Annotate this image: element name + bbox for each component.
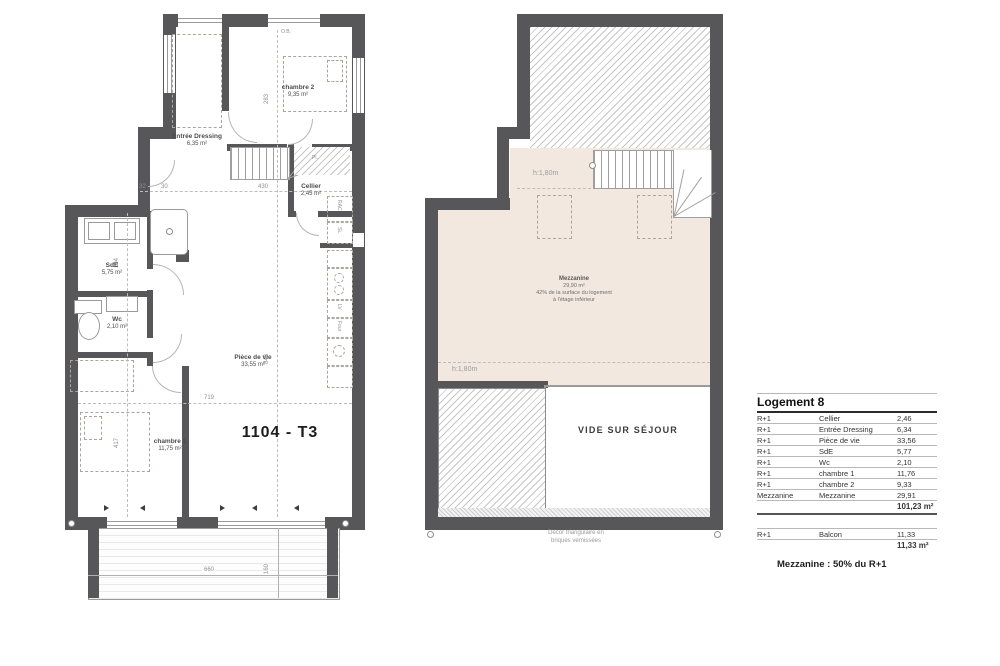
window-tag: O.B. [281,29,291,35]
cell-level: R+1 [757,414,819,423]
cell-room: Pièce de vie [819,436,897,445]
roof-window [637,195,672,239]
window [353,58,364,113]
survey-point-icon [342,520,349,527]
area-summary-table: Logement 8 R+1 Cellier 2,46 R+1 Entrée D… [757,393,937,552]
cell-level: R+1 [757,425,819,434]
cell-room: Mezzanine [819,491,897,500]
height-limit-line [438,362,710,363]
slide-arrow-icon [220,505,225,511]
dimension-label: 30 [161,184,168,190]
room-name: Wc [89,316,145,324]
table-row: R+1 chambre 2 9,33 [757,479,937,490]
survey-point-icon [68,520,75,527]
dimension-line [278,528,279,598]
hob-burner-icon [334,273,344,283]
cell-total: 11,33 m² [897,541,937,551]
room-area: 5,75 m² [84,270,140,277]
room-label-cellier: Cellier 2,45 m² [283,183,339,198]
sink-basin [114,222,136,240]
slide-arrow-icon [104,505,109,511]
wall-segment [425,198,438,530]
kitchen-tag-sl: SL [336,227,342,233]
cell-area: 9,33 [897,480,937,489]
unit-title: 1104 - T3 [210,424,350,442]
closet-tag: Pl. [312,155,318,161]
cell-room: SdE [819,447,897,456]
hob-burner-icon [334,285,344,295]
room-area: 9,35 m² [268,92,328,99]
cell-room [819,541,897,551]
cell-level [757,541,819,551]
room-name: Entrée Dressing [167,133,227,141]
interior-wall [438,381,548,388]
door-arc [228,112,257,143]
brick-decor-band [438,508,710,517]
table-row: R+1 Pièce de vie 33,56 [757,435,937,446]
stairs [593,150,675,189]
room-name: chambre 2 [268,84,328,92]
dimension-label: 430 [258,184,268,190]
cell-level: R+1 [757,530,819,539]
table-total-balcon: 11,33 m² [757,540,937,552]
table-total-main: 101,23 m² [757,501,937,515]
pillow [327,60,343,82]
room-area: 11,75 m² [140,446,200,453]
room-area: 2,45 m² [283,191,339,198]
balcony-deck [88,528,340,600]
cell-level: R+1 [757,469,819,478]
kitchen-tag-lv: LV [336,304,342,310]
void-label: VIDE SUR SÉJOUR [548,425,708,435]
cell-area: 11,76 [897,469,937,478]
room-label-sde: SdE 5,75 m² [84,262,140,277]
interior-wall [288,211,296,217]
interior-wall [222,27,229,111]
floorplan-canvas: O.B. Pl. [0,0,1000,666]
door-arc [288,119,313,145]
kitchen-unit [327,250,353,268]
cell-room: Balcon [819,530,897,539]
sink-bowl-icon [333,345,345,357]
cell-room [819,502,897,512]
cell-total: 101,23 m² [897,502,937,512]
wall-opening [353,233,364,247]
closet-hatch [294,147,350,175]
table-row: R+1 Entrée Dressing 6,34 [757,424,937,435]
sink-basin [88,222,110,240]
mezzanine-label: Mezzanine 29,90 m² 42% de la surface du … [484,275,664,304]
height-label-bottom: h:1,80m [452,366,477,373]
slide-arrow-icon [252,505,257,511]
table-row: R+1 Cellier 2,46 [757,413,937,424]
table-row: Mezzanine Mezzanine 29,91 [757,490,937,501]
cell-level [757,502,819,512]
room-name: chambre 1 [140,438,200,446]
pillow [84,416,102,440]
door-arc [296,213,319,236]
dressing-unit [172,34,222,128]
slide-arrow-icon [140,505,145,511]
axis-line [277,30,278,517]
cell-area: 5,77 [897,447,937,456]
kitchen-tag-rac: RAC [336,200,342,211]
room-area: 33,55 m² [223,362,283,369]
dimension-label: 719 [204,395,214,401]
balcony-pier [88,528,99,598]
roof-window [537,195,572,239]
wall-segment [710,14,723,530]
interior-wall [147,290,153,338]
cell-room: chambre 1 [819,469,897,478]
cell-room: Entrée Dressing [819,425,897,434]
survey-point-icon [427,531,434,538]
mezzanine-note: à l'étage inférieur [484,297,664,304]
window [178,14,222,27]
shower-drain-icon [166,228,173,235]
room-name: Pièce de vie [223,354,283,362]
cell-room: Cellier [819,414,897,423]
wall-segment [517,14,723,27]
room-label-wc: Wc 2,10 m² [89,316,145,331]
room-label-chambre-2: chambre 2 9,35 m² [268,84,328,99]
cell-room: Wc [819,458,897,467]
room-label-piece-de-vie: Pièce de vie 33,55 m² [223,354,283,369]
axis-line [78,403,352,404]
cell-area: 2,46 [897,414,937,423]
mezzanine-rule-note: Mezzanine : 50% du R+1 [777,559,887,570]
cell-area: 33,56 [897,436,937,445]
cell-level: R+1 [757,436,819,445]
balcony-pier [327,528,338,598]
cell-area: 11,33 [897,530,937,539]
room-area: 6,35 m² [167,141,227,148]
cell-level: R+1 [757,447,819,456]
table-row-balcon: R+1 Balcon 11,33 [757,529,937,540]
axis-line [127,213,128,517]
stair-newel-icon [589,162,596,169]
interior-wall [68,352,147,358]
footnote-line: briques vernissées [516,537,636,545]
low-height-hatch [438,388,546,514]
dimension-line [88,575,338,576]
wc-sink [106,296,138,312]
cell-area: 29,91 [897,491,937,500]
table-row: R+1 chambre 1 11,76 [757,468,937,479]
cell-room: chambre 2 [819,480,897,489]
height-limit-line [517,188,591,189]
table-spacer [757,515,937,529]
cell-level: Mezzanine [757,491,819,500]
cell-area: 2,10 [897,458,937,467]
mezzanine-note: 42% de la surface du logement [484,290,664,297]
low-height-hatch [530,27,710,149]
cell-level: R+1 [757,458,819,467]
dimension-label: 417 [114,438,120,448]
door-arc [148,160,175,187]
room-area: 2,10 m² [89,324,145,331]
table-row: R+1 Wc 2,10 [757,457,937,468]
dimension-label: 32 [139,184,146,190]
cell-level: R+1 [757,480,819,489]
void-edge [546,385,710,387]
stairs [230,147,290,180]
door-arc [153,264,184,295]
room-label-chambre-1: chambre 1 11,75 m² [140,438,200,453]
kitchen-unit [327,366,353,388]
cell-area: 6,34 [897,425,937,434]
survey-point-icon [714,531,721,538]
dimension-label: 160 [264,564,270,574]
wall-segment [517,14,530,127]
room-label-entree-dressing: Entrée Dressing 6,35 m² [167,133,227,148]
footnote-line: Décor triangulaire en [516,529,636,537]
room-name: SdE [84,262,140,270]
height-label-top: h:1,80m [533,170,558,177]
closet [70,360,134,392]
table-title: Logement 8 [757,394,937,413]
table-row: R+1 SdE 5,77 [757,446,937,457]
door-arc [153,334,182,363]
window [268,14,320,27]
mezzanine-name: Mezzanine [484,275,664,283]
slide-arrow-icon [294,505,299,511]
kitchen-tag-four: Four [336,321,342,331]
dimension-label: 660 [202,567,216,573]
door-arc [152,366,181,393]
room-name: Cellier [283,183,339,191]
plan-footnote: Décor triangulaire en briques vernissées [516,529,636,545]
mezzanine-area: 29,90 m² [484,283,664,290]
